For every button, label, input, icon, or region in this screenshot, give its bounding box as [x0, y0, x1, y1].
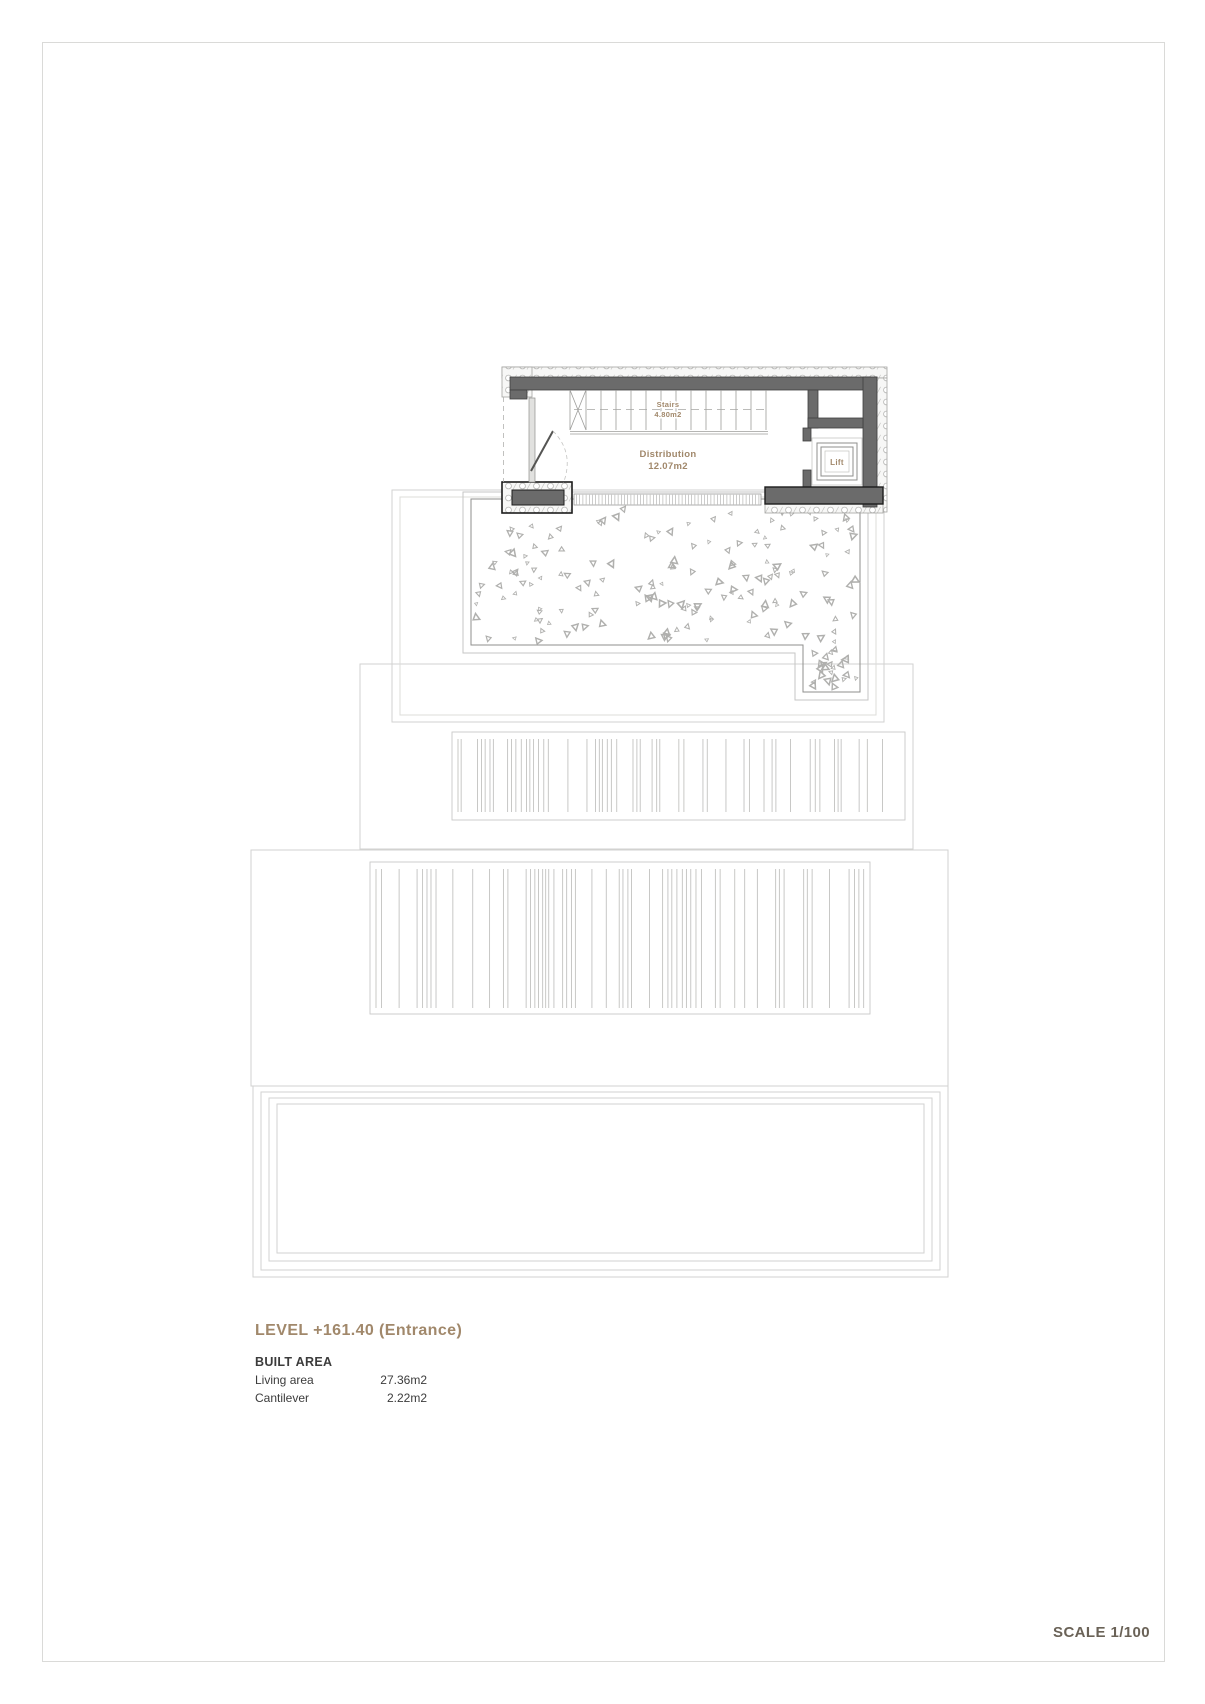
deck-stipple — [473, 506, 859, 690]
stairs-area-label: 4.80m2 — [654, 410, 681, 419]
scale-label: SCALE 1/100 — [1053, 1624, 1150, 1641]
title-block: LEVEL +161.40 (Entrance) BUILT AREA Livi… — [255, 1322, 427, 1405]
louver-band-lower — [370, 862, 870, 1014]
window-band — [574, 494, 761, 505]
living-area-label: Living area — [255, 1373, 314, 1387]
cantilever-value: 2.22m2 — [387, 1391, 427, 1405]
louver-band-upper — [452, 732, 905, 820]
entrance-plan: Stairs 4.80m2 Distribution 12.07m2 Lift — [502, 367, 887, 513]
living-area-value: 27.36m2 — [380, 1373, 427, 1387]
lift-label: Lift — [830, 458, 844, 467]
entrance-door — [504, 397, 568, 484]
level-title: LEVEL +161.40 (Entrance) — [255, 1322, 427, 1340]
lower-level-outlines — [251, 490, 948, 1277]
stairs-label: Stairs — [657, 400, 680, 409]
area-row-cantilever: Cantilever 2.22m2 — [255, 1391, 427, 1405]
louver-slats-upper — [458, 739, 882, 812]
drawing-sheet: Stairs 4.80m2 Distribution 12.07m2 Lift … — [0, 0, 1205, 1704]
built-area-heading: BUILT AREA — [255, 1355, 427, 1369]
door-swing-arc — [553, 431, 567, 484]
distribution-label: Distribution — [640, 449, 697, 460]
pillar-bottom-left — [502, 482, 572, 513]
distribution-area-label: 12.07m2 — [648, 461, 688, 472]
area-row-living: Living area 27.36m2 — [255, 1373, 427, 1387]
floor-plan-drawing: Stairs 4.80m2 Distribution 12.07m2 Lift — [0, 0, 1205, 1704]
entrance-deck — [463, 492, 868, 700]
cantilever-label: Cantilever — [255, 1391, 309, 1405]
louver-slats-lower — [376, 869, 864, 1008]
